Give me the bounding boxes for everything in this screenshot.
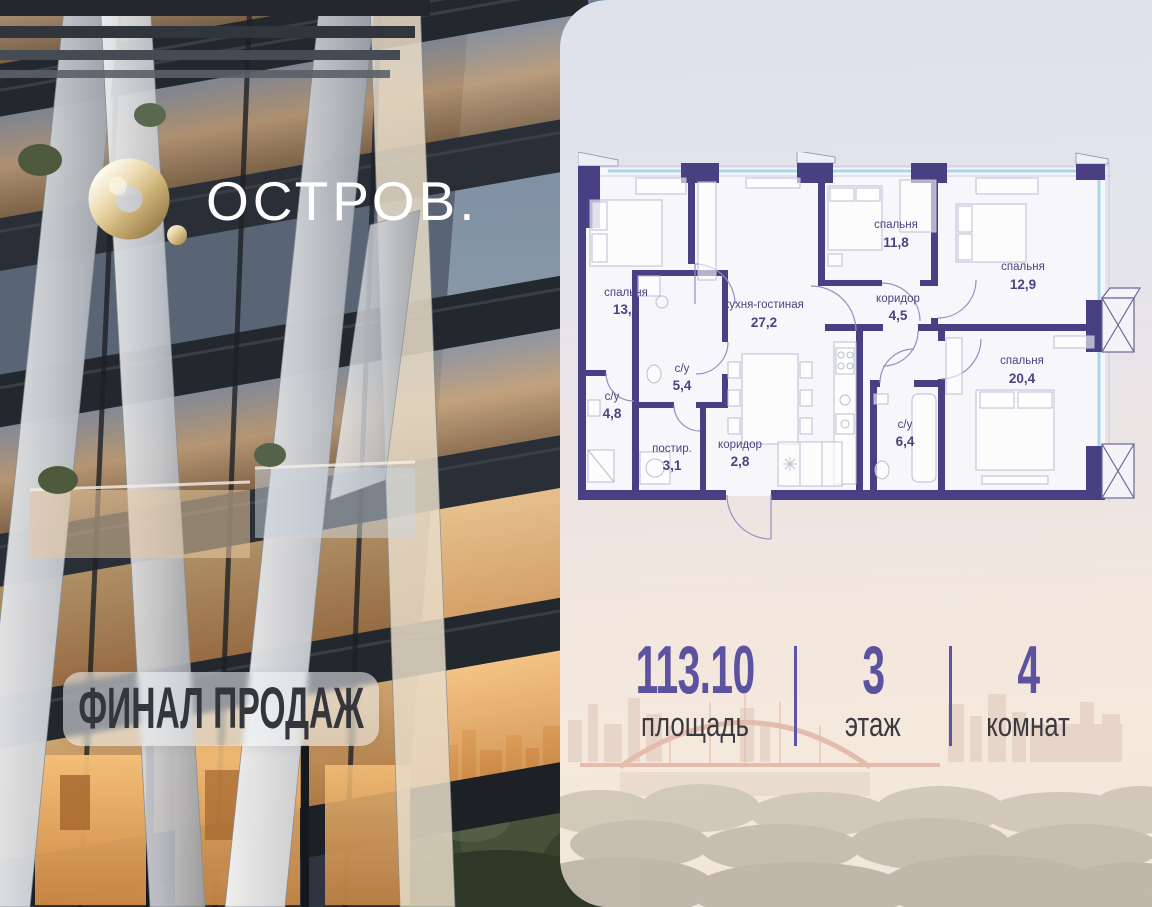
svg-text:4,5: 4,5 (889, 308, 908, 323)
final-sales-badge: ФИНАЛ ПРОДАЖ (63, 672, 379, 746)
svg-text:20,4: 20,4 (1009, 371, 1036, 386)
svg-text:с/у: с/у (898, 419, 913, 431)
svg-text:спальня: спальня (604, 287, 648, 299)
svg-text:13,8: 13,8 (613, 302, 640, 317)
stat-floor: 3 этаж (797, 636, 949, 752)
listing-card[interactable]: ОСТРОВ. ФИНАЛ ПРОДАЖ (0, 0, 1152, 907)
stat-rooms: 4 комнат (952, 636, 1104, 752)
stat-floor-label: этаж (845, 707, 901, 744)
ring-and-dot-logo-icon (88, 158, 190, 250)
svg-text:с/у: с/у (675, 363, 690, 375)
svg-text:спальня: спальня (1000, 355, 1044, 367)
entrance-door (727, 495, 771, 539)
svg-text:12,9: 12,9 (1010, 277, 1036, 292)
info-panel: спальня 13,8 кухня-гостиная 27,2 спальня… (560, 0, 1152, 907)
svg-text:спальня: спальня (874, 219, 918, 231)
svg-text:4,8: 4,8 (603, 406, 622, 421)
stat-area-value: 113.10 (636, 636, 755, 705)
lit-windows (35, 745, 410, 907)
svg-text:6,4: 6,4 (896, 434, 915, 449)
svg-text:11,8: 11,8 (883, 235, 909, 250)
svg-text:спальня: спальня (1001, 261, 1045, 273)
stat-rooms-value: 4 (1017, 636, 1039, 705)
stat-area-label: площадь (641, 707, 749, 744)
svg-text:коридор: коридор (876, 293, 920, 305)
brand-logo: ОСТРОВ. (88, 158, 479, 250)
stat-area: 113.10 площадь (596, 636, 794, 752)
svg-text:2,8: 2,8 (731, 454, 750, 469)
svg-text:кухня-гостиная: кухня-гостиная (724, 299, 804, 311)
parapets (578, 152, 1108, 166)
svg-text:27,2: 27,2 (751, 315, 777, 330)
balcony-basket-lower (1102, 444, 1134, 498)
stat-rooms-label: комнат (986, 707, 1070, 744)
room-label-bath-6-4: с/у 6,4 (896, 419, 915, 449)
brand-logo-text: ОСТРОВ. (206, 174, 479, 229)
stats-row: 113.10 площадь 3 этаж 4 комнат (596, 636, 1104, 752)
room-label-bath-4-8: с/у 4,8 (603, 391, 622, 421)
svg-text:с/у: с/у (605, 391, 620, 403)
floor-plan: спальня 13,8 кухня-гостиная 27,2 спальня… (578, 152, 1144, 572)
balcony-basket-upper (1102, 288, 1140, 352)
svg-text:коридор: коридор (718, 439, 762, 451)
svg-text:5,4: 5,4 (673, 378, 692, 393)
svg-text:3,1: 3,1 (663, 458, 682, 473)
room-label-bath-5-4: с/у 5,4 (673, 363, 692, 393)
final-sales-badge-label: ФИНАЛ ПРОДАЖ (78, 680, 363, 738)
stat-floor-value: 3 (862, 636, 884, 705)
svg-text:постир.: постир. (652, 443, 692, 455)
